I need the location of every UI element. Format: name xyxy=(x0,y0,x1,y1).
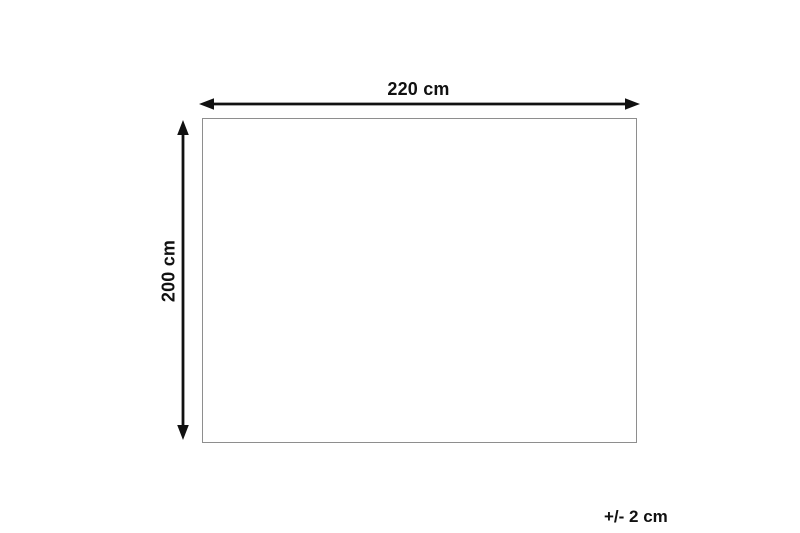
width-dimension-label: 220 cm xyxy=(200,79,637,100)
height-dimension-label: 200 cm xyxy=(159,240,180,302)
dimension-diagram: 220 cm 200 cm +/- 2 cm xyxy=(0,0,800,533)
tolerance-label: +/- 2 cm xyxy=(604,507,668,527)
product-outline-rect xyxy=(202,118,637,443)
